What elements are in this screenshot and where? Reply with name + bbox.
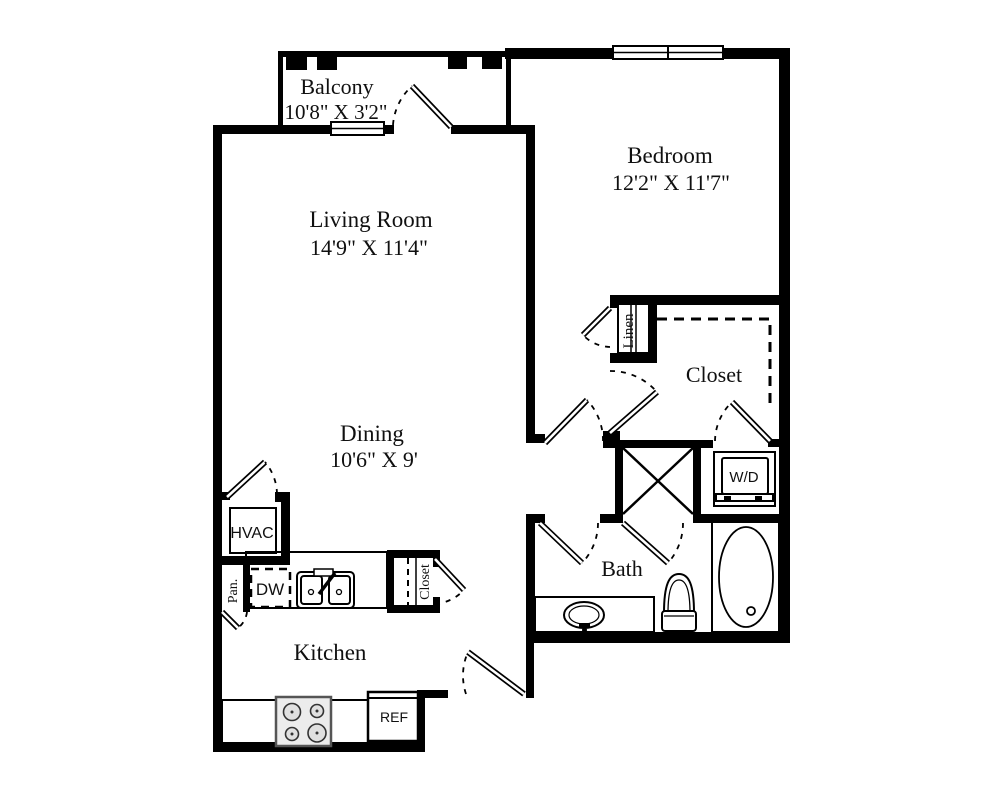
label-washer-dryer: W/D — [729, 469, 758, 486]
floorplan-drawing: Balcony 10'8" X 3'2" Living Room 14'9" X… — [0, 0, 1000, 800]
balcony-rail-top — [278, 51, 511, 57]
hall-door — [545, 400, 603, 443]
wall-hvac-right — [281, 492, 290, 565]
label-refrigerator: REF — [380, 709, 408, 725]
balcony-door — [393, 86, 451, 127]
wall-living-top-b — [384, 125, 394, 134]
wall-right — [779, 48, 790, 643]
washer-dryer-foot — [724, 496, 731, 500]
wall-kcloset-top — [387, 550, 440, 558]
label-dining-dims: 10'6" X 9' — [330, 447, 418, 472]
toilet — [662, 574, 696, 631]
wall-left — [213, 125, 222, 752]
wall-divider-cap — [526, 434, 545, 443]
label-bedroom: Bedroom — [627, 143, 713, 168]
label-dining: Dining — [340, 421, 404, 446]
wall-shaft-top — [603, 440, 713, 448]
wall-kcloset-stub-b — [433, 597, 440, 613]
stove — [276, 697, 331, 746]
bath-fixtures — [535, 522, 779, 633]
label-living-room: Living Room — [309, 207, 432, 232]
label-balcony-dims: 10'8" X 3'2" — [285, 100, 388, 124]
label-walk-in-closet: Closet — [686, 362, 742, 387]
label-living-room-dims: 14'9" X 11'4" — [310, 235, 428, 260]
bathtub — [712, 522, 779, 632]
label-bedroom-dims: 12'2" X 11'7" — [612, 170, 730, 195]
balcony-rail-left — [278, 51, 283, 127]
wall-hvac-bottom — [213, 556, 290, 565]
bath-sink — [564, 602, 604, 633]
wall-living-top-c — [451, 125, 535, 134]
linen-door — [583, 308, 610, 347]
hvac-door — [227, 462, 277, 497]
balcony-rail-right — [506, 51, 511, 127]
wall-bath-top-mid — [600, 514, 623, 523]
label-kitchen-closet: Closet — [418, 564, 433, 600]
wall-entry-step-h — [417, 690, 448, 698]
pantry-door — [222, 612, 247, 628]
kitchen-sink — [297, 569, 354, 608]
bath-door-left — [540, 523, 598, 563]
balcony-post — [286, 57, 307, 70]
label-linen: Linen — [621, 313, 637, 348]
wall-entry-right — [526, 641, 534, 698]
wall-kcloset-left — [387, 550, 394, 613]
floorplan-page: Balcony 10'8" X 3'2" Living Room 14'9" X… — [0, 0, 1000, 800]
label-balcony: Balcony — [300, 74, 373, 99]
wd-nook-door — [715, 402, 770, 441]
wall-bedroom-top-a — [505, 48, 613, 59]
wall-shaft-right — [693, 448, 701, 514]
bedroom-window — [613, 46, 723, 59]
wall-bath-bottom — [526, 632, 790, 643]
balcony-post — [448, 57, 467, 69]
wall-linen-right — [649, 295, 657, 363]
wall-living-top-a — [213, 125, 331, 134]
label-bath: Bath — [601, 556, 643, 581]
label-dishwasher: DW — [256, 580, 284, 599]
wall-bath-left — [526, 514, 535, 643]
windows — [331, 46, 723, 135]
entry-door — [463, 652, 524, 694]
wall-shaft-left — [615, 448, 623, 514]
walk-in-closet-door — [610, 371, 657, 433]
label-hvac: HVAC — [230, 525, 273, 542]
label-pantry: Pan. — [226, 579, 241, 604]
washer-dryer-foot — [755, 496, 762, 500]
tub-drain — [747, 607, 755, 615]
balcony-post — [482, 57, 502, 69]
wall-wd-stub — [768, 439, 790, 447]
bath-faucet — [579, 623, 590, 628]
wall-living-bedroom-divider — [526, 125, 535, 443]
label-kitchen: Kitchen — [294, 640, 367, 665]
wall-kcloset-bottom — [387, 605, 440, 613]
wall-linen-stub — [610, 295, 618, 308]
balcony-post — [317, 57, 337, 70]
faucet-base — [314, 569, 333, 576]
wall-pantry-right — [243, 565, 250, 612]
